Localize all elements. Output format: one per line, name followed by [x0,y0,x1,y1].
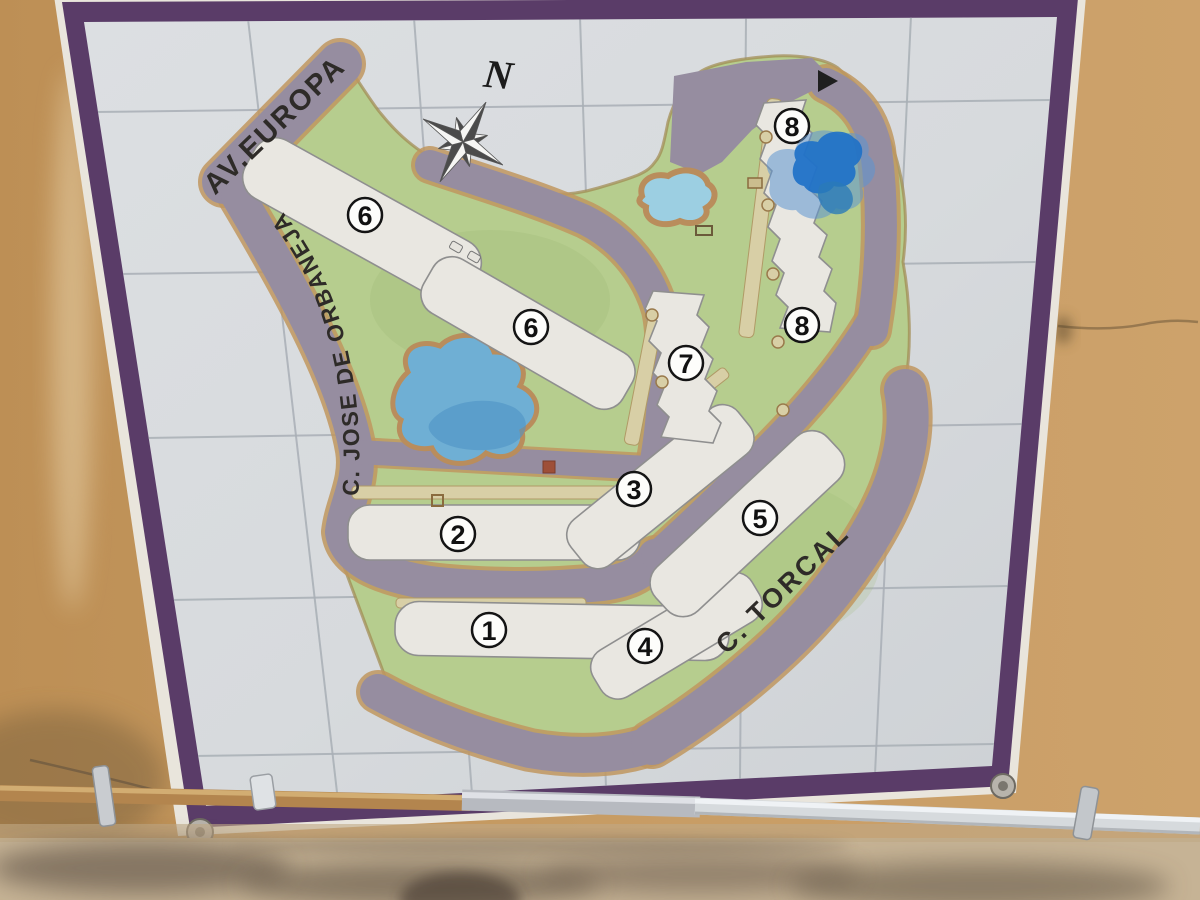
building-label: 6 [348,198,382,232]
building-label: 7 [669,346,703,380]
svg-text:5: 5 [752,504,767,534]
tree-icon [777,404,789,416]
svg-text:8: 8 [784,112,799,142]
tree-icon [772,336,784,348]
building-label: 8 [785,308,819,342]
tree-icon [760,131,772,143]
steps-icon [748,178,762,188]
building-label: 2 [441,517,475,551]
grime-shadow-line [230,837,850,855]
tree-icon [762,199,774,211]
site-map-photo: 1 2 3 4 5 6 6 7 8 8 AV.EUROPA C. JOSE DE… [0,0,1200,900]
pipe-sleeve [250,774,277,811]
tree-icon [646,309,658,321]
pool [639,170,714,224]
building-label: 4 [628,629,662,663]
tree-icon [656,376,668,388]
building-label: 6 [514,310,548,344]
tile-panel: 1 2 3 4 5 6 6 7 8 8 AV.EUROPA C. JOSE DE… [54,0,1086,845]
frame-bolt-right-center [998,781,1008,791]
parking-strip-b2 [352,486,634,499]
svg-text:6: 6 [357,201,372,231]
building-label: 3 [617,472,651,506]
red-structure-icon [543,461,555,473]
svg-text:4: 4 [637,632,652,662]
svg-text:3: 3 [626,475,641,505]
tree-icon [767,268,779,280]
building-label: 1 [472,613,506,647]
svg-text:6: 6 [523,313,538,343]
svg-text:1: 1 [481,616,496,646]
lower-wall [0,824,1200,900]
svg-text:2: 2 [450,520,465,550]
svg-text:7: 7 [678,349,693,379]
svg-text:8: 8 [794,311,809,341]
building-label: 5 [743,501,777,535]
